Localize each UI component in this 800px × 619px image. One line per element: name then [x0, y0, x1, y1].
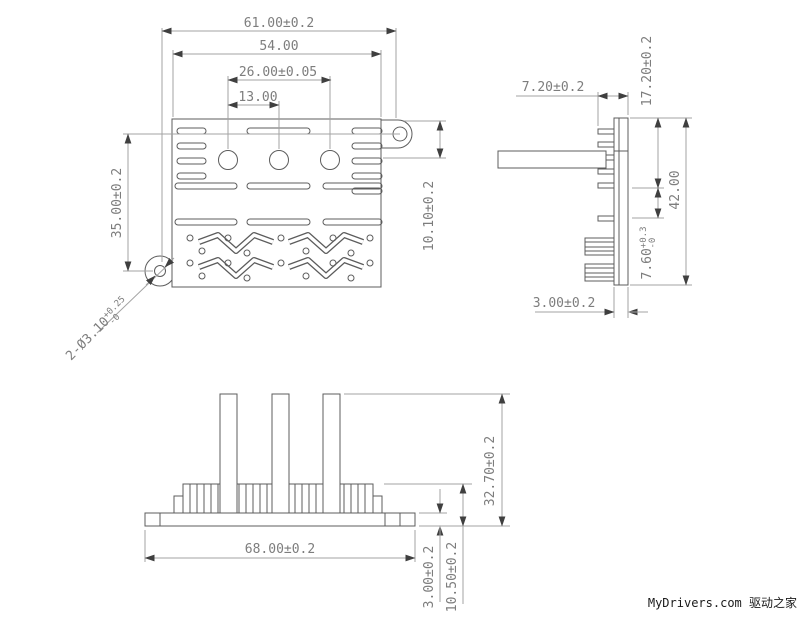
- dim-top-tab-offset: 10.10±0.2: [422, 181, 437, 251]
- side-tab: [498, 151, 606, 168]
- dim-top-hole-span: 26.00±0.05: [239, 65, 317, 80]
- front-step-right: [373, 496, 382, 513]
- front-base-plate: [145, 513, 415, 526]
- side-combs: [585, 238, 614, 281]
- drawing-canvas: 61.00±0.2 54.00 26.00±0.05 13.00 35.00±0…: [0, 0, 800, 619]
- watermark-text: MyDrivers.com 驱动之家: [648, 595, 797, 610]
- dim-top-body-width: 54.00: [259, 39, 298, 54]
- technical-drawing: 61.00±0.2 54.00 26.00±0.05 13.00 35.00±0…: [0, 0, 800, 619]
- side-view: 7.20±0.2 17.20±0.2 42.00 7.60+0.3-0 3.00…: [498, 36, 692, 318]
- dim-side-plate-thickness: 3.00±0.2: [533, 296, 596, 311]
- dim-front-total-height: 32.70±0.2: [483, 436, 498, 506]
- dim-front-base-thickness: 3.00±0.2: [422, 546, 437, 609]
- dim-side-fin-depth: 7.20±0.2: [522, 80, 585, 95]
- dim-side-tab-drop: 17.20±0.2: [640, 36, 655, 106]
- dim-top-overall-width: 61.00±0.2: [244, 16, 314, 31]
- dim-hole-callout: 2-Ø3.10+0.25-0: [63, 295, 134, 366]
- front-view: 68.00±0.2 3.00±0.2 10.50±0.2 32.70±0.2: [145, 394, 510, 612]
- dim-top-height: 35.00±0.2: [110, 168, 125, 238]
- dim-front-base-fin-height: 10.50±0.2: [445, 542, 460, 612]
- front-step-left: [174, 496, 183, 513]
- side-body: [614, 118, 628, 285]
- dim-front-width: 68.00±0.2: [245, 542, 315, 557]
- dim-top-hole-pitch: 13.00: [238, 90, 277, 105]
- dim-side-fin-span: 7.60+0.3-0: [639, 227, 658, 280]
- side-fins: [598, 129, 615, 221]
- top-view: 61.00±0.2 54.00 26.00±0.05 13.00 35.00±0…: [63, 16, 446, 366]
- dim-side-height: 42.00: [668, 170, 683, 209]
